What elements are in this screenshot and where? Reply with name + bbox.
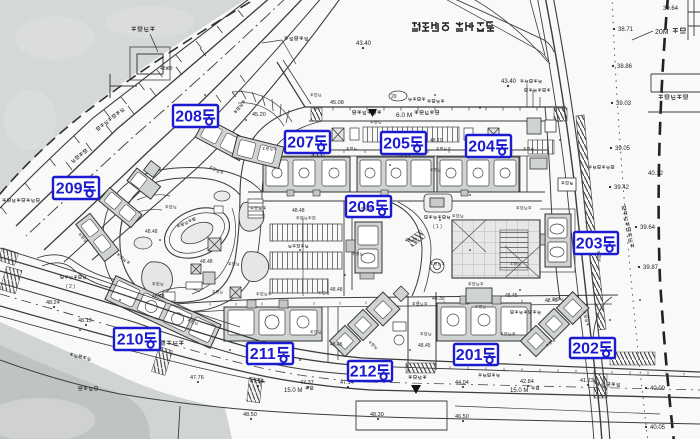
svg-text:48.48: 48.48 — [152, 294, 165, 300]
svg-text:48.24: 48.24 — [46, 300, 60, 306]
svg-text:47.76: 47.76 — [190, 375, 204, 381]
svg-text:48.38: 48.38 — [160, 66, 173, 72]
svg-text:41.23: 41.23 — [580, 378, 594, 384]
svg-text:48.45: 48.45 — [418, 343, 431, 349]
svg-text:42.84: 42.84 — [520, 379, 534, 385]
svg-text:38.71: 38.71 — [618, 27, 634, 33]
svg-text:39.87: 39.87 — [643, 265, 659, 271]
svg-text:45.20: 45.20 — [252, 112, 266, 118]
svg-text:45.08: 45.08 — [330, 100, 344, 106]
svg-text:44.04: 44.04 — [455, 380, 469, 386]
svg-text:48.48: 48.48 — [330, 287, 343, 293]
svg-text:6.0 M: 6.0 M — [396, 112, 412, 119]
svg-text:203: 203 — [576, 236, 603, 253]
svg-text:210: 210 — [117, 332, 144, 349]
svg-text:207: 207 — [287, 135, 314, 152]
svg-text:39.42: 39.42 — [614, 185, 630, 191]
svg-text:40.05: 40.05 — [650, 425, 666, 431]
svg-text:38.86: 38.86 — [617, 64, 633, 70]
svg-text:20M: 20M — [655, 29, 669, 36]
svg-text:48.48: 48.48 — [545, 298, 558, 304]
svg-text:46.50: 46.50 — [455, 414, 469, 420]
svg-text:48.48: 48.48 — [200, 259, 213, 265]
svg-text:202: 202 — [572, 341, 599, 358]
svg-text:( 2 ): ( 2 ) — [66, 284, 75, 290]
svg-text:212: 212 — [350, 364, 377, 381]
svg-text:39.05: 39.05 — [615, 146, 631, 152]
svg-text:209: 209 — [56, 181, 83, 198]
svg-text:( 1 ): ( 1 ) — [433, 224, 442, 230]
svg-text:43.40: 43.40 — [501, 79, 517, 85]
svg-text:205: 205 — [383, 136, 410, 153]
svg-text:47.37: 47.37 — [300, 380, 314, 386]
svg-text:15.0 M: 15.0 M — [284, 388, 302, 394]
svg-text:48.45: 48.45 — [330, 342, 343, 348]
svg-text:40.12: 40.12 — [648, 171, 664, 177]
svg-text:39.64: 39.64 — [640, 225, 656, 231]
svg-text:48.45: 48.45 — [405, 238, 418, 244]
svg-text:204: 204 — [468, 139, 495, 156]
svg-text:39.64: 39.64 — [663, 6, 679, 12]
svg-text:48.30: 48.30 — [432, 296, 445, 302]
svg-text:48.10: 48.10 — [430, 138, 443, 144]
svg-text:20: 20 — [391, 94, 397, 100]
svg-text:43.40: 43.40 — [356, 41, 372, 47]
svg-text:48.45: 48.45 — [505, 293, 518, 299]
svg-text:208: 208 — [175, 109, 202, 126]
svg-text:48.48: 48.48 — [292, 208, 305, 214]
svg-text:47.58: 47.58 — [250, 379, 264, 385]
svg-text:201: 201 — [456, 347, 483, 364]
svg-text:39.03: 39.03 — [616, 101, 632, 107]
svg-text:48.48: 48.48 — [145, 229, 158, 235]
svg-text:15.0 M: 15.0 M — [510, 388, 528, 394]
svg-text:48.30: 48.30 — [370, 412, 384, 418]
svg-text:211: 211 — [250, 346, 276, 363]
svg-text:48.13: 48.13 — [78, 318, 92, 324]
svg-text:48.50: 48.50 — [243, 412, 257, 418]
